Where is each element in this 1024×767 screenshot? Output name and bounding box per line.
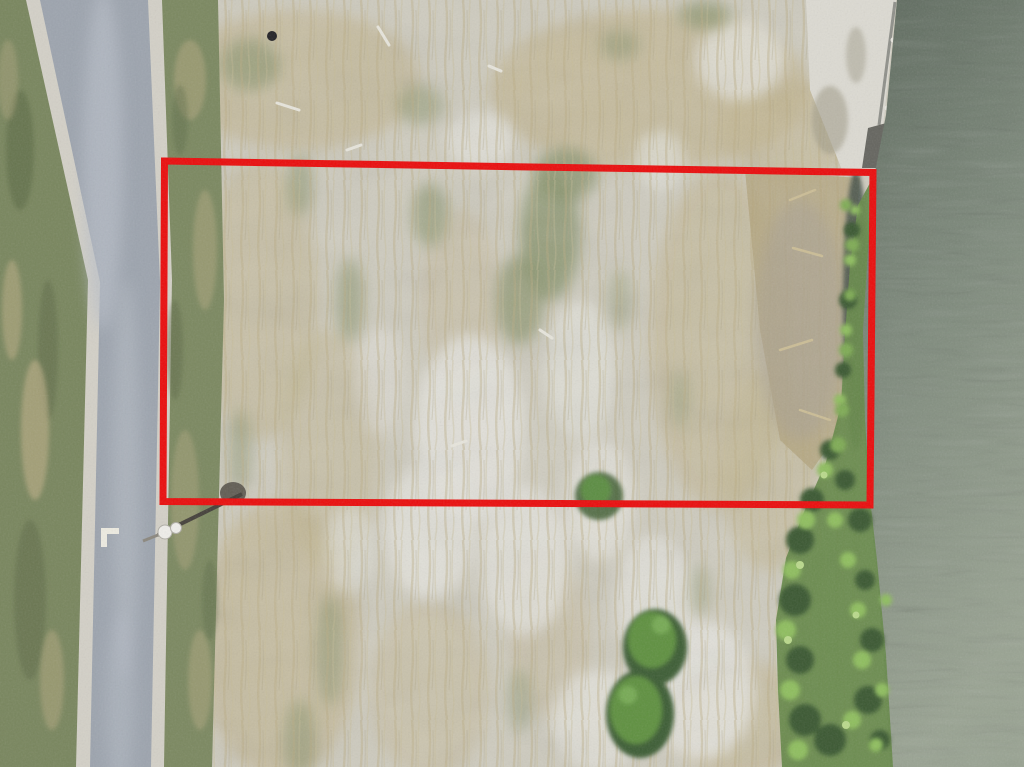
photo-grain	[0, 0, 1024, 767]
aerial-photo-stage	[0, 0, 1024, 767]
aerial-photo	[0, 0, 1024, 767]
